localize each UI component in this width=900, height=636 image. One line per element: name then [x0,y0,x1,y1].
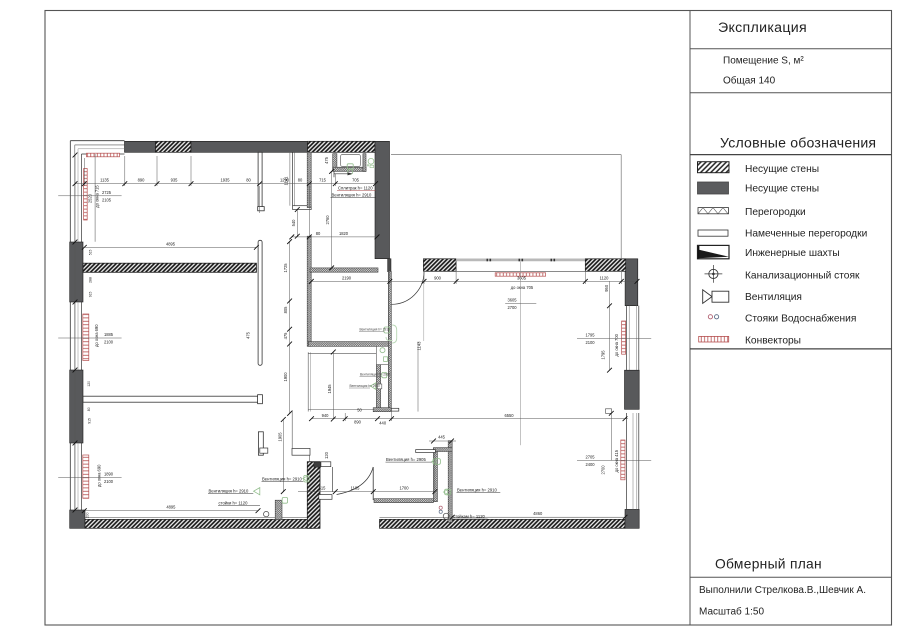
svg-text:80: 80 [316,231,321,236]
svg-text:540: 540 [291,219,296,227]
svg-text:Инженерные шахты: Инженерные шахты [745,248,840,259]
svg-text:до окна 715: до окна 715 [94,185,99,208]
svg-text:Условные обозначения: Условные обозначения [720,135,876,151]
svg-text:2700: 2700 [601,465,606,475]
svg-text:2105: 2105 [102,197,112,202]
svg-text:2705: 2705 [585,455,595,460]
svg-text:1905: 1905 [277,432,282,442]
svg-text:4860: 4860 [533,511,543,516]
svg-text:80: 80 [87,407,91,411]
svg-text:805: 805 [283,306,288,314]
svg-text:Помещение S, м²: Помещение S, м² [723,56,804,67]
svg-text:Несущие стены: Несущие стены [745,164,819,175]
svg-text:4895: 4895 [166,241,176,246]
svg-text:2100: 2100 [104,479,114,484]
svg-text:до окна 705: до окна 705 [511,285,534,290]
svg-text:705: 705 [352,178,360,183]
svg-text:80: 80 [298,178,303,183]
svg-text:1890: 1890 [104,472,114,477]
svg-text:475: 475 [324,156,329,164]
svg-text:6550: 6550 [504,413,514,418]
svg-text:3605: 3605 [517,275,527,280]
svg-text:Общая 140: Общая 140 [723,75,776,87]
svg-text:2190: 2190 [342,275,352,280]
svg-text:2100: 2100 [104,340,114,345]
svg-text:1795: 1795 [585,333,595,338]
svg-text:1141: 1141 [284,176,289,186]
svg-text:3605: 3605 [507,297,517,302]
svg-text:2700: 2700 [507,305,517,310]
svg-text:Вентиляция: Вентиляция [745,292,802,303]
svg-text:4895: 4895 [166,505,176,510]
svg-text:2400: 2400 [585,462,595,467]
svg-text:915: 915 [88,291,92,297]
svg-text:440: 440 [379,420,387,425]
svg-text:2520: 2520 [88,193,93,203]
svg-text:1900: 1900 [283,372,288,382]
svg-text:120: 120 [87,381,91,387]
svg-text:до окна 690: до окна 690 [96,464,101,487]
svg-text:Вентиляция h= 2910: Вентиляция h= 2910 [332,192,372,197]
svg-text:515: 515 [319,486,327,491]
svg-text:Вентиляция h= 2910: Вентиляция h= 2910 [262,477,302,482]
svg-text:Вентиляция h= 2910: Вентиляция h= 2910 [457,487,497,492]
svg-text:Экспликация: Экспликация [718,20,807,36]
svg-text:288: 288 [88,277,92,283]
svg-text:Канализационный стояк: Канализационный стояк [745,271,860,282]
svg-text:50: 50 [357,407,362,412]
svg-text:1700: 1700 [399,486,409,491]
svg-text:2100: 2100 [585,340,595,345]
svg-text:515: 515 [88,249,92,255]
svg-text:2760: 2760 [325,215,330,225]
svg-text:935: 935 [171,178,179,183]
svg-text:1725: 1725 [283,263,288,273]
svg-text:1945: 1945 [327,384,332,394]
svg-text:Перегородки: Перегородки [745,207,806,218]
svg-text:до окна 700: до окна 700 [614,333,619,356]
svg-text:120: 120 [324,451,329,459]
svg-text:Масштаб 1:50: Масштаб 1:50 [699,606,764,618]
svg-text:475: 475 [245,331,250,339]
svg-text:Вентиляция h= 2910: Вентиляция h= 2910 [360,373,391,377]
svg-text:445: 445 [438,435,446,440]
svg-text:900: 900 [434,275,442,280]
svg-text:1935: 1935 [220,178,230,183]
svg-text:2725: 2725 [102,190,112,195]
svg-text:715: 715 [319,178,327,183]
svg-text:стойкам h= 1120: стойкам h= 1120 [453,514,486,519]
svg-text:до окна 415: до окна 415 [614,449,619,472]
svg-text:1820: 1820 [339,231,349,236]
svg-text:Обмерный план: Обмерный план [715,557,822,572]
svg-text:1885: 1885 [104,332,114,337]
svg-text:Выполнили Стрелкова.В.,Шевчик: Выполнили Стрелкова.В.,Шевчик А. [699,585,866,596]
svg-text:200: 200 [86,512,90,518]
svg-text:915: 915 [88,418,92,424]
svg-text:до окна 690: до окна 690 [94,324,99,347]
svg-text:Конвекторы: Конвекторы [745,336,801,347]
svg-text:1135: 1135 [100,178,110,183]
svg-text:Вентиляция h= 2910: Вентиляция h= 2910 [360,328,391,332]
svg-text:Вентиляция h= 2910: Вентиляция h= 2910 [209,489,249,494]
svg-text:940: 940 [322,413,330,418]
svg-text:1185: 1185 [351,486,361,491]
svg-text:Вентиляция h= 2905: Вентиляция h= 2905 [386,457,426,462]
svg-text:950: 950 [604,284,609,292]
svg-text:1795: 1795 [601,350,606,360]
svg-text:Стояки Водоснабжения: Стояки Водоснабжения [745,313,856,325]
svg-text:1143: 1143 [417,341,422,351]
svg-text:Намеченные перегородки: Намеченные перегородки [745,229,867,240]
svg-text:Вентиляция h= 2910: Вентиляция h= 2910 [350,384,381,388]
svg-text:80: 80 [246,178,251,183]
svg-text:475: 475 [283,332,288,340]
svg-text:1120: 1120 [600,275,610,280]
svg-text:Сплитрак h= 1120: Сплитрак h= 1120 [338,186,373,191]
svg-text:890: 890 [354,420,362,425]
svg-text:890: 890 [138,178,146,183]
svg-text:стойки h= 1120: стойки h= 1120 [219,500,249,505]
svg-text:Несущие стены: Несущие стены [745,184,819,195]
